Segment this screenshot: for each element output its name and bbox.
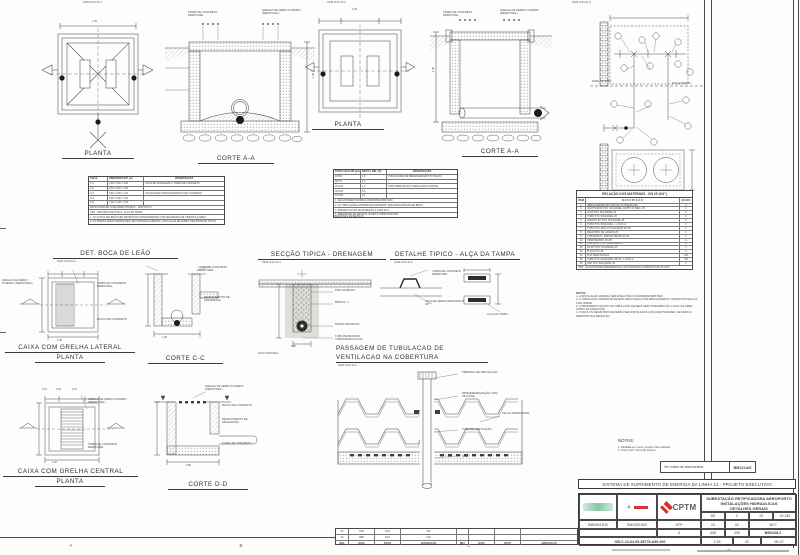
- table-row: 1ABRAÇADEIRA DE FIXAÇÃO C/ PARAFUSO4: [577, 203, 692, 207]
- notes-title: NOTAS:: [618, 438, 738, 443]
- notes-block: NOTAS: 1- Medidas em metro, exceto onde …: [618, 438, 738, 452]
- dim-label: 0,60: [56, 388, 61, 391]
- field-13: 13: [749, 512, 773, 520]
- annotation: NÍVEL DO PISO: [592, 80, 614, 83]
- dim-label: 0,80: [186, 464, 191, 467]
- spec-table-1: CAIXADIMENSÕES INT. (m)OBSERVAÇÕES C-10,…: [88, 176, 225, 225]
- corte-aa1-title: CORTE A-A: [198, 155, 274, 164]
- annotation: TELHA TRAPEZOIDAL: [502, 412, 532, 415]
- signature-logo: [579, 494, 617, 520]
- passagem-title-2: VENTILACAO NA COBERTURA: [336, 354, 488, 363]
- caixa-central-title: CAIXA COM GRELHA CENTRAL: [3, 468, 138, 477]
- field-de: DE: [701, 512, 725, 520]
- annotation: ALÇA DE FERRO REDONDO Ø 3/8": [425, 300, 469, 306]
- sheet-border: [793, 0, 794, 548]
- annotation: TAMPA DE CONCRETO REMOVIVEL: [443, 11, 485, 17]
- annotation: GRELHA DE FERRO FUNDIDO (REMOVIVEL): [262, 9, 306, 15]
- sheet-border: [798, 0, 799, 555]
- annotation: ALÇA DA TAMPA: [487, 313, 521, 316]
- table-row: 2ADAPTADOR PVC SOLDAVEL CURTO P/ REG. 25…: [577, 206, 692, 210]
- table-row: 7TUBO PVC AZUL P/ CAVALETE DN 251: [577, 226, 692, 230]
- field-contract-1: 8365/3021130: [579, 520, 617, 529]
- dim-label: 1,05: [92, 20, 97, 23]
- corte-dd-drawing: [145, 390, 260, 470]
- caixa-lateral-subtitle: PLANTA: [35, 354, 105, 363]
- cptm-logo-icon: [660, 501, 673, 514]
- field-contract-2: 8343/3301100: [617, 520, 657, 529]
- table-row: 15TUBO PVC SOLDAVEL DN 25 - L=3,00 mVB: [577, 257, 692, 261]
- annotation: CANAL DE CONCRETO: [222, 442, 258, 445]
- field-code: BB0438-2: [749, 529, 797, 537]
- caixa-lateral-title: CAIXA COM GRELHA LATERAL: [5, 344, 135, 353]
- field-blank: [579, 529, 657, 537]
- table-row: 13PLUG PVC 251: [577, 249, 692, 253]
- consortium-logo-bar: [634, 506, 648, 509]
- annotation: TAMPA DE CONCRETO REMOVIVEL: [432, 270, 470, 276]
- dim-label: 1,05: [52, 461, 57, 464]
- dim-label: 0,15: [72, 388, 77, 391]
- annotation: SOLO NATURAL: [258, 352, 294, 355]
- scale-note: SEM ESCALA: [327, 1, 346, 4]
- table-row: 14FITA VEDA ROSCA1 RL: [577, 253, 692, 257]
- title-block: ▲ CPTM SUBESTAÇÃO RETIFICADORA AEROPORTO…: [578, 493, 796, 545]
- table-row: 16CAP PVC SOLDAVEL 251: [577, 261, 692, 265]
- corte-cc-drawing: [140, 266, 225, 341]
- frame-bottom: [0, 537, 336, 538]
- table-row: 8REGISTRO DE GAVETA 251: [577, 230, 692, 234]
- alca-title: DETALHE TIPICO - ALÇA DA TAMPA: [390, 251, 520, 260]
- field-02: 02: [725, 520, 749, 529]
- planta1-title: PLANTA: [62, 150, 134, 159]
- table-row: 3LUVA PVC SOLDAVEL 252: [577, 210, 692, 214]
- footer-text-bar: [697, 550, 789, 552]
- dim-label: 1,46: [432, 67, 435, 72]
- signature-logo-icon: [583, 503, 613, 511]
- indice-label: Ver índice de documentos: [661, 465, 729, 469]
- materials-table: RELAÇÃO DOS MATERIAIS - DN 25 (3/4") ITE…: [576, 190, 693, 270]
- field-6: 6: [657, 529, 701, 537]
- table-row: 4TUBO PVC SOLDAVEL 252: [577, 214, 692, 218]
- annotation: BLOCO DE CONCRETO: [222, 404, 258, 407]
- note-item: 2- Nível 0,00 = Nível do terreno: [618, 449, 738, 452]
- materials-title: RELAÇÃO DOS MATERIAIS - DN 25 (3/4"): [577, 191, 692, 198]
- field-folha: 05-07: [761, 537, 797, 546]
- cavalete-drawing: [590, 8, 705, 203]
- footer-text-bar: [612, 549, 670, 551]
- field-seq: 24-240: [773, 512, 797, 520]
- edge-tick: [0, 228, 6, 229]
- passagem-title-1: PASSAGEM DE TUBULACAO DE: [336, 345, 488, 352]
- scale-note: SEM ESCALA: [338, 364, 357, 367]
- drawing-title: SUBESTAÇÃO RETIFICADORA AEROPORTO INSTAL…: [701, 494, 797, 512]
- annotation: PISO ACABADO: [335, 289, 371, 292]
- field-005: 005: [725, 529, 749, 537]
- spec2-footnote: DIMENSÕES EM METROS: [333, 215, 364, 218]
- spec-table-2: TUBULAÇÃO DN (mm)DECLIV. MIN. (%)OBSERVA…: [333, 169, 458, 218]
- corte-cc-title: CORTE C-C: [148, 355, 223, 364]
- annotation: MANTA GEOTEXTIL: [335, 323, 371, 326]
- corte-aa1-drawing: [165, 18, 315, 153]
- indice-box: Ver índice de documentos BB1214/0: [660, 461, 756, 473]
- annotation: TAMPA DE CONCRETO REMOVIVEL: [97, 282, 133, 288]
- table-row: 10HIDROMETRO DN 251: [577, 238, 692, 242]
- field-c: C: [725, 512, 749, 520]
- corte-aa2-title: CORTE A-A: [462, 148, 538, 157]
- scale-note: SEM ESCALA: [83, 1, 102, 4]
- planta2-title: PLANTA: [312, 121, 384, 130]
- passagem-drawing: [330, 370, 530, 490]
- dim-label: 0,15: [42, 388, 47, 391]
- table-row: 5JOELHO 90º PVC SOLDAVEL 256: [577, 218, 692, 222]
- annotation: REVESTIMENTO DE ARGAMASSA: [222, 418, 258, 424]
- indice-code: BB1214/0: [729, 462, 755, 472]
- planta1-drawing: [40, 18, 155, 153]
- scale-note: SEM ESCALA: [572, 1, 591, 4]
- revision-strip: 02GFPFGSGW 00ABRFGSGW REV.DATAVISTOAPROV…: [335, 528, 578, 545]
- annotation: GRELHA DE FERRO FUNDIDO (REMOVIVEL): [205, 385, 251, 391]
- annotation: TAMPA DE CONCRETO REMOVIVEL: [88, 443, 128, 449]
- field-24: 24: [701, 520, 725, 529]
- table-row: 12TE 90º PVC SOLDAVEL 251: [577, 245, 692, 249]
- det-boca-title: DET. BOCA DE LEÃO: [53, 250, 178, 259]
- scale-note: SEM ESCALA: [394, 261, 413, 264]
- cptm-wordmark: CPTM: [673, 503, 697, 512]
- table-row: 11CURVA 90º PVC SOLDAVEL 252: [577, 242, 692, 246]
- annotation: TAMPA DE CONCRETO REMOVIVEL: [188, 11, 230, 17]
- field-3677: 3677: [749, 520, 797, 529]
- seccao-title: SECÇÃO TIPICA - DRENAGEM: [258, 251, 386, 260]
- annotation: RUA EXTERNA: [672, 82, 694, 85]
- annotation: LAJE: [462, 455, 482, 458]
- annotation: TERMINAL DE VENTILAÇÃO: [462, 371, 502, 374]
- annotation: BRITA Nº 3: [335, 301, 371, 304]
- document-number: OB-C-13-04-05-58778-A99-000: [579, 537, 701, 546]
- annotation: IMPERMEABILIZAÇÃO COM SILICONE: [462, 392, 504, 398]
- scale-note: SEM ESCALA: [57, 260, 76, 263]
- grid-letter-c: C: [464, 543, 474, 548]
- corte-dd-title: CORTE D-D: [168, 481, 248, 490]
- edge-tick: [0, 332, 6, 333]
- table-row: 9TORNEIRA P/ JARDIM METALICA 251: [577, 234, 692, 238]
- annotation: TUBO PERFURADO CORRUGADO DN 100: [335, 335, 375, 341]
- table-row: 6TUBO PVC SOLDAVEL - L=2,00 m1: [577, 222, 692, 226]
- grid-letter-b: B: [236, 543, 246, 548]
- grid-letter-a: A: [66, 543, 76, 548]
- annotation: GRELHA DE FERRO FUNDIDO (REMOVIVEL): [2, 279, 40, 285]
- annotation: REVESTIMENTO DE ARGAMASSA: [204, 296, 238, 302]
- cptm-logo: CPTM: [657, 494, 701, 520]
- annotation: TUBO DE VENTILAÇÃO: [462, 428, 498, 431]
- dim-label: 0,25: [291, 345, 296, 348]
- drawing-sheet: SEM ESCALA SEM ESCALA SEM ESCALA 1,05 PL…: [0, 0, 800, 555]
- project-banner: SISTEMA DE SUPRIMENTO DE ENERGIA DA LINH…: [578, 479, 796, 489]
- annotation: GRELHA DE FERRO FUNDIDO (REMOVIVEL): [500, 9, 544, 15]
- field-a08: A08: [701, 529, 725, 537]
- field-rev: 02: [733, 537, 761, 546]
- annotation: GRELHA DE FERRO FUNDIDO (REMOVIVEL): [88, 398, 134, 404]
- caixa-central-subtitle: PLANTA: [35, 478, 105, 487]
- materials-notes: NOTAS: 1- A INSTALAÇÃO DEVERÁ SER EXECUT…: [576, 292, 698, 318]
- field-scale: 1:25: [701, 537, 733, 546]
- field-gfp: GFP: [657, 520, 701, 529]
- scale-note: SEM ESCALA: [262, 261, 281, 264]
- frame-line: [711, 0, 712, 481]
- consortium-logo-icon: ▲: [626, 504, 632, 510]
- corte-aa2-drawing: [430, 14, 552, 149]
- dim-label: 1,05: [162, 336, 167, 339]
- annotation: BLOCO DE CONCRETO: [97, 318, 131, 321]
- annotation: TAMPA DE CONCRETO REMOVIVEL: [198, 266, 234, 272]
- dim-label: 1,05: [57, 339, 62, 342]
- dim-label: 1,05: [352, 8, 357, 11]
- consortium-logo: ▲: [617, 494, 657, 520]
